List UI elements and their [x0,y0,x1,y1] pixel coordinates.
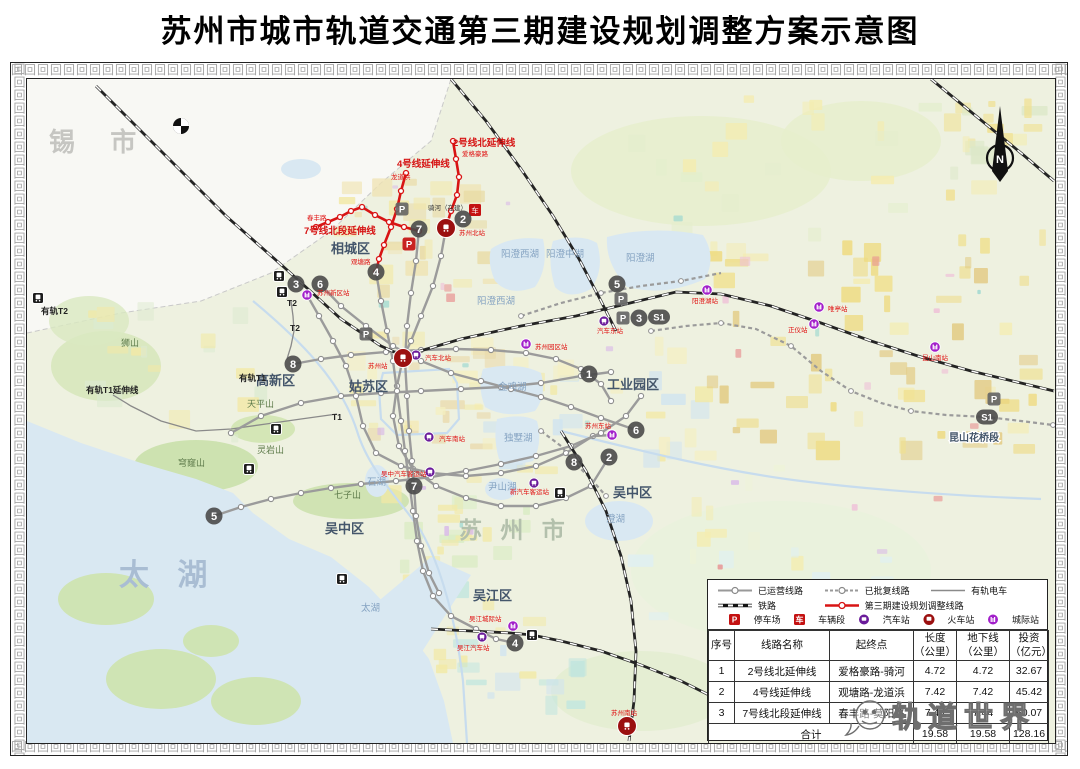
metro-station [268,496,273,501]
metro-station [328,485,333,490]
station-label: 正仪站 [788,325,808,334]
phase3-station [377,257,382,262]
metro-station [426,570,431,575]
station-label: 苏州新区站 [317,288,350,297]
metro-station [523,350,528,355]
line-badge-label: 8 [571,457,577,469]
table-total-cell: 19.58 [957,724,1010,745]
metro-station [316,313,321,318]
station-label: 唯亭站 [828,304,848,313]
intercity-station-icon [607,430,617,440]
intercity-station-icon [930,342,940,352]
train-station-icon [274,271,285,282]
line-badge-label: 5 [614,279,620,291]
station-label: 苏州园区站 [535,342,568,351]
approved-station [649,329,654,334]
metro-station [404,393,409,398]
metro-station [418,543,423,548]
table-cell: 7.42 [914,682,957,703]
metro-station [433,483,438,488]
metro-station [228,430,233,435]
legend-label: 已运营线路 [758,584,803,597]
metro-station [353,393,358,398]
parking-badge-label: P [991,395,998,406]
map-canvas: PPPPPP车122334455667788S1S1N太 湖苏 州 市锡 市相城… [26,78,1056,744]
phase3-station [373,213,378,218]
legend-and-table-box: 已运营线路已批复线路有轨电车铁路第三期建设规划调整线路P停车场车车辆段汽车站火车… [707,579,1048,741]
metro-station [430,283,435,288]
station-label: 苏州北站 [459,228,486,237]
metro-station [430,593,435,598]
line-badge-label: S1 [653,312,665,323]
line-badge-label: 4 [512,638,519,650]
lake-label: 阳澄西湖 [501,248,539,260]
tram-label: T2 [290,323,300,333]
phase3-station [360,205,365,210]
parking-badge-label: P [618,295,625,306]
metro-station [378,298,383,303]
metro-station [358,481,363,486]
metro-station [338,393,343,398]
metro-station [463,468,468,473]
train-station-icon [33,293,44,304]
metro-station [498,461,503,466]
metro-station [360,423,365,428]
tram-label: 有轨T1延伸线 [86,385,139,395]
parking-lot-icon-label: P [406,240,413,251]
station-label: 吴江城际站 [469,614,502,623]
district-label: 相城区 [331,241,370,256]
phase3-swatch [823,599,861,612]
legend-row: 铁路第三期建设规划调整线路 [716,598,1039,613]
table-cell: 7.42 [957,682,1010,703]
metro-station [463,473,468,478]
table-cell: 2 [709,682,735,703]
operating-swatch [716,584,754,597]
bus-station-icon [477,632,487,642]
phase3-station [454,157,459,162]
lake-label: 阳澄中湖 [546,248,584,260]
district-label: 吴中区 [613,485,652,500]
mountain-label: 七子山 [334,490,361,500]
metro-station [488,347,493,352]
legend-row: 已运营线路已批复线路有轨电车 [716,583,1039,598]
table-total-cell: 19.58 [914,724,957,745]
station-label: 吴中汽车客运站 [381,469,427,478]
table-total-row: 合计19.5819.58128.16 [709,724,1049,745]
metro-station [533,503,538,508]
metro-station [436,590,441,595]
phase3-line-label: 7号线北段延伸线 [304,225,376,237]
table-cell: 7号线北段延伸线 [735,703,830,724]
approved-station [719,321,724,326]
station-label: 昆山南站 [922,353,949,362]
phase3-station [382,243,387,248]
line-badge-label: 1 [586,369,592,381]
depot-glyph: 车 [471,205,479,215]
legend-item-intercity: 城际站 [974,613,1039,626]
metro-station [398,463,403,468]
approved-swatch [823,584,861,597]
metro-station [409,458,414,463]
lake-shape [490,238,545,291]
big-area-label: 太 湖 [119,559,217,592]
table-cell: 4.72 [914,661,957,682]
table-header: 序号 [709,631,735,661]
phase3-line-label: 2号线北延伸线 [453,137,516,149]
metro-station [238,504,243,509]
approved-station [789,344,794,349]
table-cell: 7.44 [957,703,1010,724]
tram-label: 有轨T1 [239,373,266,383]
table-header: 线路名称 [735,631,830,661]
metro-station [598,381,603,386]
metro-station [453,346,458,351]
legend-item-tram: 有轨电车 [929,584,1036,597]
station-label: 吴江汽车站 [457,643,490,652]
parking-swatch: P [716,613,750,626]
station-label: 爱格豪路 [462,149,489,158]
phase3-station [338,215,343,220]
parking-badge-label: P [620,314,627,325]
metro-station [373,450,378,455]
railway-swatch [716,599,754,612]
bus-station-icon [599,316,609,326]
table-total-cell: 128.16 [1010,724,1049,745]
parking-badge-label: P [363,330,370,341]
station-label: 新汽车客运站 [510,487,550,496]
metro-station [538,394,543,399]
legend-label: 汽车站 [883,613,910,626]
phase3-station [402,225,407,230]
svg-text:车: 车 [795,615,803,625]
train-station-icon [277,287,288,298]
metro-station [413,258,418,263]
railway-station-icon [394,349,413,368]
legend-label: 铁路 [758,599,776,612]
compass-n-label: N [996,154,1004,166]
metro-station [408,290,413,295]
metro-station [338,303,343,308]
metro-station [638,393,643,398]
table-cell: 1 [709,661,735,682]
intercity-station-icon [302,290,312,300]
lake-label: 澄湖 [606,513,625,525]
line-badge-label: 5 [211,511,217,523]
metro-station [258,413,263,418]
line-badge-label: 2 [606,452,612,464]
metro-station [343,363,348,368]
approved-station [849,389,854,394]
metro-station [348,352,353,357]
metro-station [498,503,503,508]
train-swatch [910,613,944,626]
legend-item-phase3: 第三期建设规划调整线路 [823,599,1036,612]
metro-station [413,513,418,518]
legend-row: P停车场车车辆段汽车站火车站城际站 [716,612,1039,627]
lake-label: 石湖 [367,477,386,488]
table-cell: 观塘路-龙道浜 [830,682,914,703]
district-label: 姑苏区 [349,379,388,394]
table-cell: 爱格豪路-骑河 [830,661,914,682]
station-label: 汽车东站 [597,326,624,335]
metro-station [404,323,409,328]
phase3-station [349,209,354,214]
tram-label: 有轨T2 [41,306,68,316]
district-label: 工业园区 [607,377,659,392]
train-station-icon [244,464,255,475]
intercity-station-icon [809,319,819,329]
table-header: 起终点 [830,631,914,661]
table-row: 12号线北延伸线爱格豪路-骑河4.724.7232.67 [709,661,1049,682]
lake-label: 阳澄西湖 [477,295,515,307]
metro-station [568,404,573,409]
table-header: 投资（亿元） [1010,631,1049,661]
metro-station [598,415,603,420]
depot-swatch: 车 [781,613,815,626]
train-station-icon [527,630,538,641]
line-badge-label: 3 [636,313,642,325]
svg-text:P: P [732,616,738,625]
approved-station [909,409,914,414]
legend-item-operating: 已运营线路 [716,584,823,597]
table-header: 地下线（公里） [957,631,1010,661]
mountain-label: 穹窿山 [178,457,205,468]
frame-pattern-left: 回回回回回回回回回回回回回回回回回回回回回回回回回回回回回回回回回回回回回回回回… [11,63,26,755]
metro-station [390,343,395,348]
metro-station [438,253,443,258]
metro-station [533,463,538,468]
metro-station [408,338,413,343]
phase3-station [457,175,462,180]
line-badge-label: 6 [317,279,323,291]
line-badge-label: 7 [411,481,417,493]
table-cell: 45.42 [1010,682,1049,703]
metro-station [533,453,538,458]
metro-station [608,398,613,403]
mountain-label: 灵岩山 [257,444,284,455]
intercity-station-icon [814,302,824,312]
map-legend: 已运营线路已批复线路有轨电车铁路第三期建设规划调整线路P停车场车车辆段汽车站火车… [708,580,1047,630]
metro-station [384,328,389,333]
metro-station [298,400,303,405]
metro-station [493,636,498,641]
table-row: 24号线延伸线观塘路-龙道浜7.427.4245.42 [709,682,1049,703]
intercity-station-icon [702,285,712,295]
metro-station [553,356,558,361]
lake-label: 太湖 [361,602,380,614]
phase3-station [455,193,460,198]
bus-swatch [845,613,879,626]
phase3-line-label: 4号线延伸线 [397,158,450,170]
metro-station [538,380,543,385]
metro-station [458,386,463,391]
bus-station-icon [424,432,434,442]
lake-label: 金鸡湖 [498,381,527,393]
legend-item-approved: 已批复线路 [823,584,930,597]
station-label: 龙道浜 [391,172,411,181]
station-label-dark: 骑河（在建） [428,203,467,212]
station-label: 春丰路 [307,213,327,222]
parking-badge-label: P [399,205,406,216]
mountain-label: 狮山 [121,338,139,348]
page: 苏州市城市轨道交通第三期建设规划调整方案示意图 回回回回回回回回回回回回回回回回… [0,0,1080,769]
legend-label: 火车站 [947,613,974,626]
corner-city-label: 锡 市 [49,127,150,157]
approved-station [679,279,684,284]
table-cell: 2号线北延伸线 [735,661,830,682]
approved-station [519,314,524,319]
mountain-label: 天平山 [247,399,274,409]
legend-item-train: 火车站 [910,613,975,626]
station-label: 阳澄湖站 [692,296,719,305]
legend-item-depot: 车车辆段 [781,613,846,626]
metro-station [598,430,603,435]
approved-station [539,429,544,434]
metro-station [330,338,335,343]
legend-label: 城际站 [1012,613,1039,626]
line-badge-label: 3 [293,279,299,291]
metro-station [394,388,399,393]
phase3-station [399,189,404,194]
line-badge-label: 6 [633,425,639,437]
railway-station-icon [437,219,456,238]
table-cell: 春丰路-莫阳路 [830,703,914,724]
intercity-station-icon [521,339,531,349]
station-label: 苏州南站 [611,708,638,717]
legend-label: 停车场 [754,613,781,626]
metro-station [623,413,628,418]
big-area-label: 苏 州 市 [459,517,571,543]
frame-pattern-top: 回回回回回回回回回回回回回回回回回回回回回回回回回回回回回回回回回回回回回回回回… [11,63,1067,78]
approved-station [599,291,604,296]
intercity-swatch [974,613,1008,626]
line-badge-label: 2 [460,214,466,226]
table-total-label: 合计 [709,724,914,745]
station-label: 苏州东站 [585,421,612,430]
approved-station [604,494,609,499]
bus-station-icon [529,478,539,488]
legend-item-railway: 铁路 [716,599,823,612]
legend-label: 有轨电车 [971,584,1007,597]
metro-station [318,356,323,361]
approved-station [1051,423,1055,428]
page-title: 苏州市城市轨道交通第三期建设规划调整方案示意图 [0,6,1080,51]
line-data-table: 序号线路名称起终点长度（公里）地下线（公里）投资（亿元）12号线北延伸线爱格豪路… [708,630,1049,744]
table-cell: 4号线延伸线 [735,682,830,703]
train-station-icon [271,424,282,435]
metro-station [418,388,423,393]
metro-station [498,470,503,475]
metro-station [298,490,303,495]
line-badge-label: 8 [290,359,296,371]
phase3-station [387,220,392,225]
line-badge-label: 4 [373,267,380,279]
station-label: 观塘路 [351,257,371,266]
kunshan-section-label: 昆山花桥段 [949,431,999,444]
metro-station [396,443,401,448]
legend-item-parking: P停车场 [716,613,781,626]
station-label: 汽车南站 [439,434,466,443]
table-cell: 32.67 [1010,661,1049,682]
legend-label: 已批复线路 [865,584,910,597]
table-cell: 50.07 [1010,703,1049,724]
table-row: 37号线北段延伸线春丰路-莫阳路7.447.4450.07 [709,703,1049,724]
table-cell: 4.72 [957,661,1010,682]
lake-label: 阳澄湖 [626,252,655,264]
metro-station [390,413,395,418]
station-label: 苏州站 [368,361,388,370]
legend-label: 车辆段 [818,613,845,626]
district-label: 吴江区 [473,588,512,603]
station-label: 汽车北站 [425,353,452,362]
metro-station [398,418,403,423]
metro-station [402,448,407,453]
tram-swatch [929,584,967,597]
metro-station [478,378,483,383]
metro-station [448,613,453,618]
metro-station [463,495,468,500]
line-badge-label: S1 [981,412,993,423]
metro-station [448,370,453,375]
train-station-icon [555,488,566,499]
district-label: 吴中区 [325,521,364,536]
railway-station-icon [618,717,637,736]
tram-label: T2 [287,298,297,308]
metro-station [406,428,411,433]
metro-station [393,478,398,483]
metro-station [608,369,613,374]
tram-label: T1 [332,412,342,422]
legend-label: 第三期建设规划调整线路 [865,599,964,612]
intercity-station-icon [508,621,518,631]
table-header: 长度（公里） [914,631,957,661]
train-station-icon [337,574,348,585]
metro-station [420,568,425,573]
line-badge-label: 7 [416,224,422,236]
table-cell: 7.44 [914,703,957,724]
phase3-station [389,225,394,230]
metro-station [418,313,423,318]
bus-station-icon [425,467,435,477]
benchmark-icon [173,118,189,134]
legend-item-bus: 汽车站 [845,613,910,626]
table-cell: 3 [709,703,735,724]
lake-label: 独墅湖 [504,432,533,444]
